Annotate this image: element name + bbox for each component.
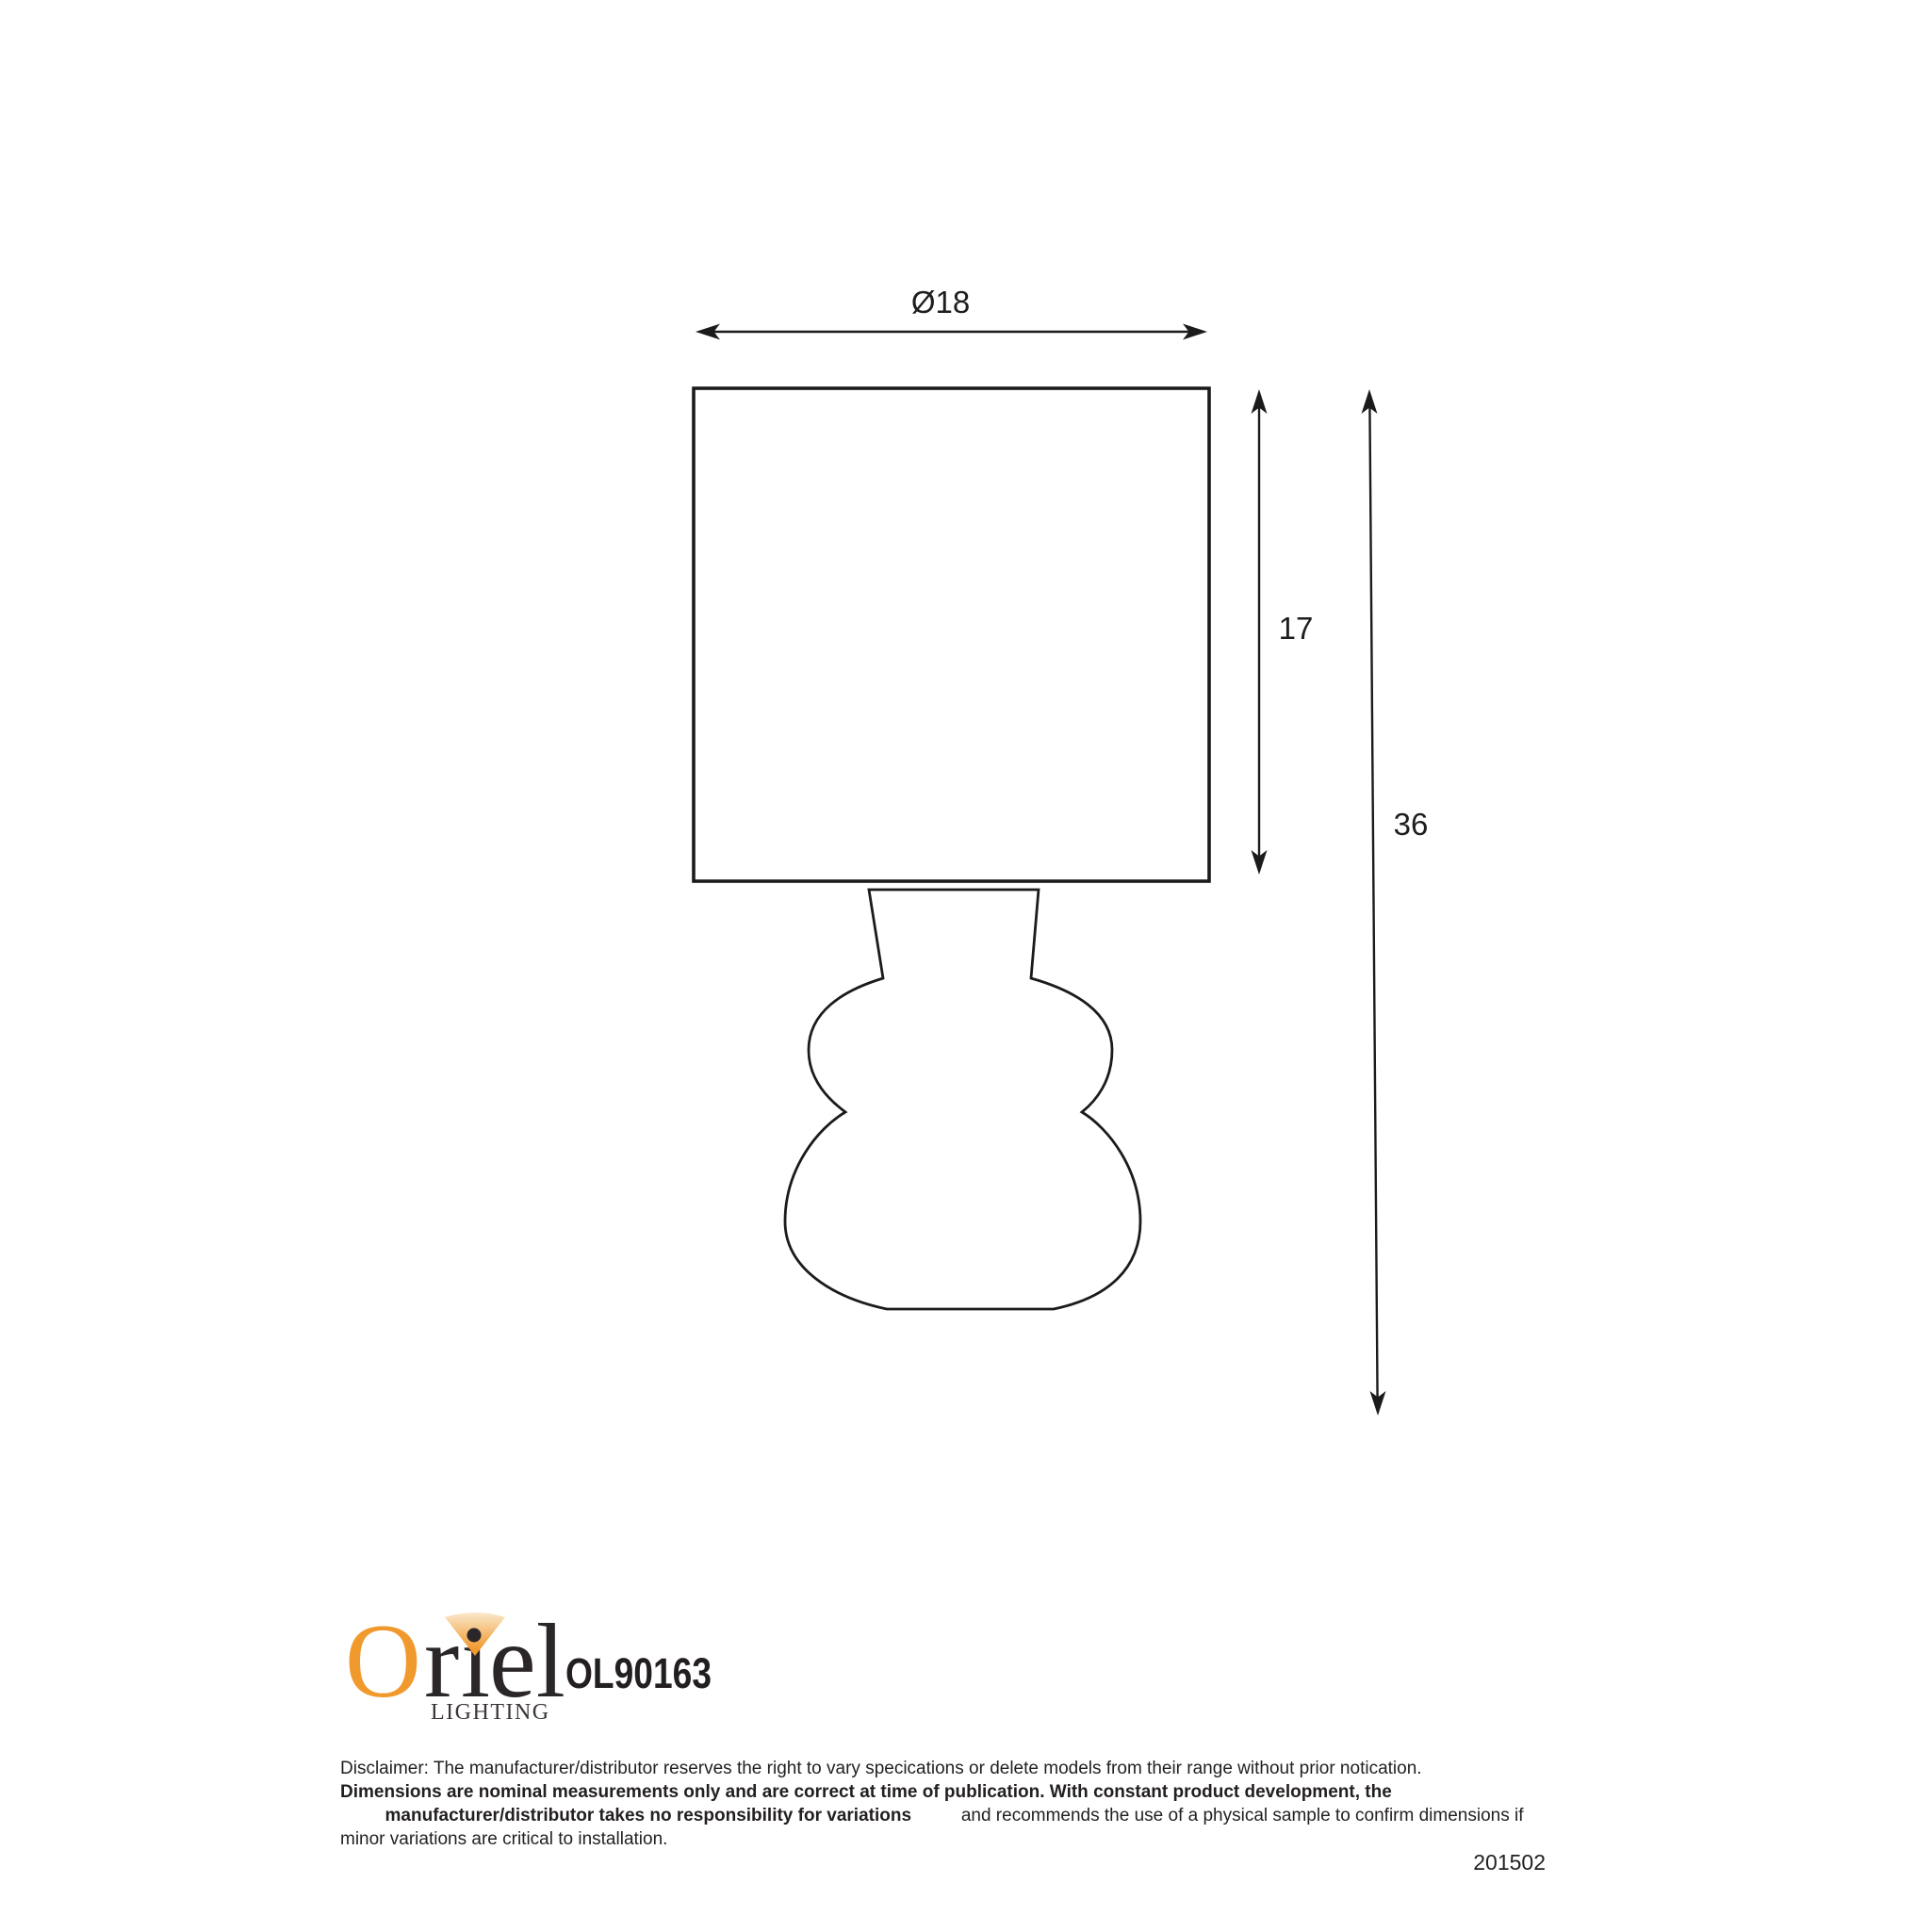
disclaimer-line-3-regular: and recommends the use of a physical sam… — [957, 1806, 1525, 1826]
document-code: 201502 — [1473, 1850, 1546, 1875]
lamp-base-outline — [785, 890, 1140, 1309]
logo-subtitle: LIGHTING — [431, 1700, 550, 1725]
dimension-drawing: Ø18 17 36 O r ı el LIGHTING OL90163 Disc… — [0, 0, 1932, 1932]
oriel-logo: O r ı el LIGHTING — [345, 1603, 565, 1725]
total-height-dimension-line — [1369, 393, 1377, 1412]
disclaimer-block: Disclaimer: The manufacturer/distributor… — [340, 1759, 1558, 1849]
total-height-dimension-label: 36 — [1394, 807, 1429, 842]
lamp-shade-outline — [694, 388, 1209, 881]
disclaimer-line-1: Disclaimer: The manufacturer/distributor… — [340, 1759, 1422, 1778]
disclaimer-line-3-bold: manufacturer/distributor takes no respon… — [385, 1806, 912, 1826]
disclaimer-line-3: manufacturer/distributor takes no respon… — [340, 1806, 1558, 1826]
disclaimer-line-2: Dimensions are nominal measurements only… — [340, 1782, 1392, 1802]
logo-letter-o: O — [345, 1603, 421, 1720]
spec-sheet-page: Ø18 17 36 O r ı el LIGHTING OL90163 Disc… — [0, 0, 1932, 1932]
shade-height-dimension-label: 17 — [1279, 611, 1314, 646]
model-number: OL90163 — [565, 1649, 712, 1697]
cone-dot-icon — [467, 1629, 482, 1643]
disclaimer-line-4: minor variations are critical to install… — [340, 1829, 667, 1849]
width-dimension-label: Ø18 — [911, 285, 970, 319]
